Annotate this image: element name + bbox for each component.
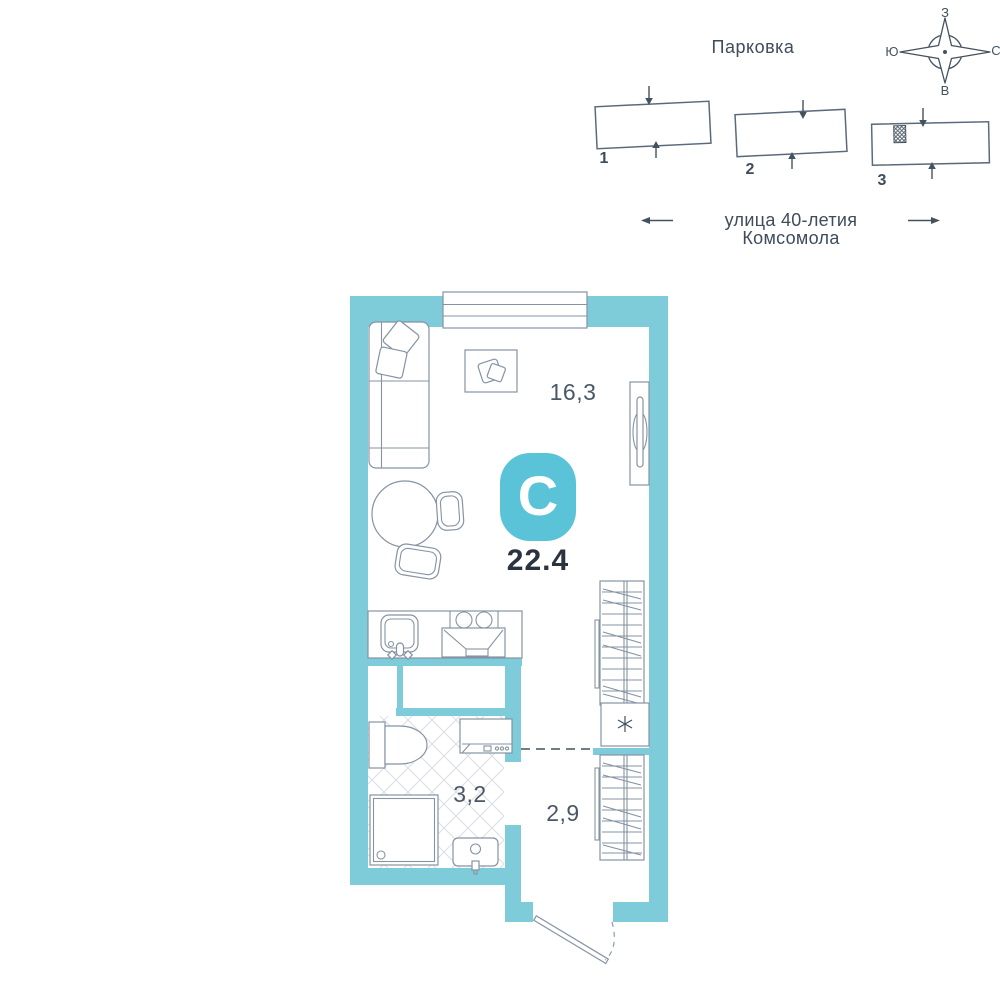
shower-icon: [370, 795, 438, 865]
wardrobe-icon: [595, 581, 644, 705]
washing-machine-icon: [460, 719, 512, 753]
street-label: улица 40-летия Комсомола: [681, 211, 901, 247]
compass-label-bottom: В: [937, 84, 953, 97]
building-2-number: 2: [742, 162, 758, 178]
studio-type-letter: С: [518, 463, 558, 528]
compass-label-top: З: [937, 6, 953, 19]
building-1-number: 1: [596, 151, 612, 167]
hallway-area-label: 2,9: [523, 802, 603, 825]
left-arrow-icon: [641, 217, 673, 224]
bathroom-area-label: 3,2: [430, 783, 510, 806]
parking-building-1: [595, 101, 711, 149]
sofa-icon: [369, 320, 429, 468]
chair-icon: [436, 491, 465, 531]
compass-label-left: Ю: [884, 45, 900, 58]
window-icon: [443, 292, 587, 328]
coffee-table-icon: [465, 350, 517, 392]
door-icon: [534, 916, 615, 964]
tv-stand-icon: [630, 382, 649, 485]
location-hatch-icon: [894, 126, 906, 143]
compass-rose-icon: [900, 18, 990, 83]
studio-type-badge: С: [500, 453, 576, 541]
total-area-label: 22.4: [478, 544, 598, 578]
right-arrow-icon: [908, 217, 940, 224]
compass-label-right: С: [988, 44, 1000, 57]
down-arrow-icon: [645, 86, 653, 105]
parking-title: Парковка: [653, 38, 853, 56]
parking-building-3: [872, 122, 990, 165]
parking-building-2: [735, 109, 847, 156]
chair-icon: [394, 543, 442, 581]
living-room-area-label: 16,3: [533, 381, 613, 404]
apartment-plan: [350, 292, 668, 963]
dining-table-icon: [372, 481, 438, 547]
building-3-number: 3: [874, 173, 890, 189]
boiler-icon: [601, 703, 649, 746]
floor-plan-page: Парковка улица 40-летия Комсомола З В Ю …: [0, 0, 1000, 1000]
